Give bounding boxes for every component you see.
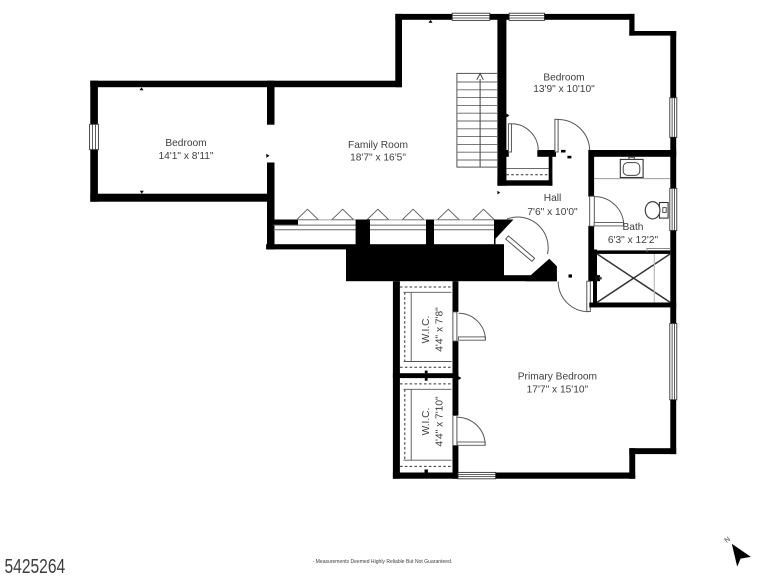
svg-text:Bedroom: Bedroom	[543, 72, 584, 83]
svg-text:7'6" x 10'0": 7'6" x 10'0"	[527, 207, 578, 218]
svg-text:5425264: 5425264	[5, 555, 66, 576]
svg-text:18'7" x 16'5": 18'7" x 16'5"	[350, 153, 406, 164]
svg-text:6'3" x 12'2": 6'3" x 12'2"	[608, 235, 659, 246]
svg-text:13'9" x 10'10": 13'9" x 10'10"	[533, 84, 595, 95]
svg-text:Family Room: Family Room	[348, 140, 408, 151]
svg-text:- Measurements Deemed Highly R: - Measurements Deemed Highly Reliable Bu…	[313, 559, 453, 565]
svg-text:17'7" x 15'10": 17'7" x 15'10"	[527, 384, 589, 395]
svg-text:4'4" x 7'8": 4'4" x 7'8"	[435, 307, 446, 352]
svg-text:Bath: Bath	[623, 222, 644, 233]
svg-text:Primary Bedroom: Primary Bedroom	[518, 372, 597, 383]
svg-text:14'1" x 8'11": 14'1" x 8'11"	[158, 151, 213, 162]
svg-text:W.I.C.: W.I.C.	[421, 316, 432, 344]
svg-text:4'4" x 7'10": 4'4" x 7'10"	[435, 396, 446, 447]
svg-text:Hall: Hall	[544, 193, 562, 204]
svg-text:Bedroom: Bedroom	[165, 138, 206, 149]
svg-text:W.I.C.: W.I.C.	[421, 408, 432, 436]
